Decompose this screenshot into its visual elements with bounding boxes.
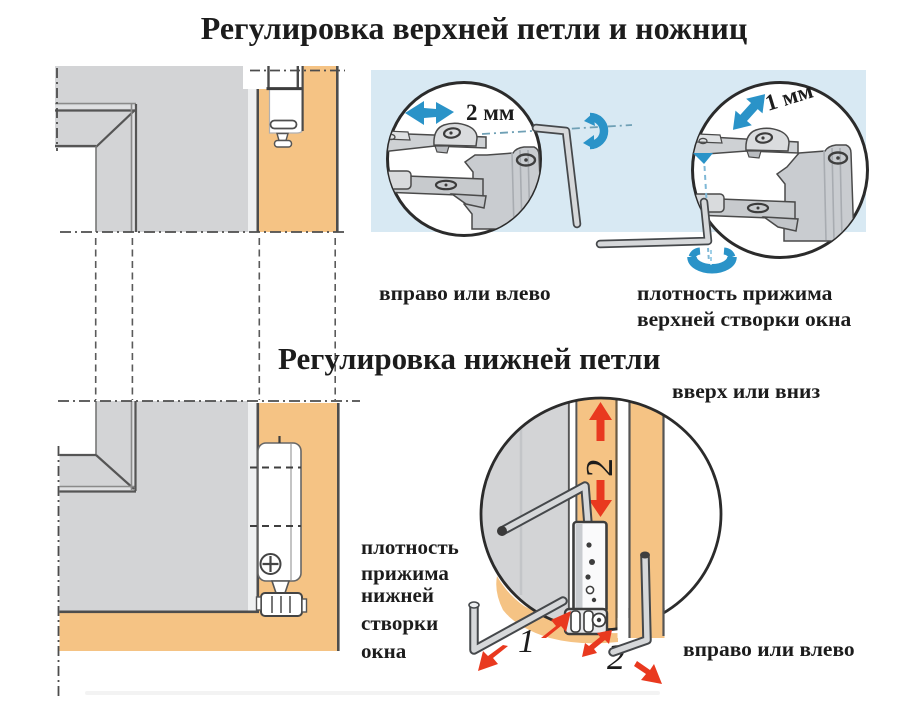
svg-text:вверх или вниз: вверх или вниз <box>672 379 820 403</box>
svg-text:окна: окна <box>361 639 407 663</box>
svg-text:верхней створки окна: верхней створки окна <box>637 307 852 331</box>
svg-text:вправо или влево: вправо или влево <box>683 637 855 661</box>
svg-text:плотность прижима: плотность прижима <box>637 281 833 305</box>
svg-text:вправо или влево: вправо или влево <box>379 281 551 305</box>
svg-text:Регулировка нижней петли: Регулировка нижней петли <box>278 341 661 376</box>
svg-text:плотность: плотность <box>361 535 459 559</box>
svg-text:2: 2 <box>607 637 625 677</box>
svg-text:1: 1 <box>518 623 535 660</box>
svg-text:створки: створки <box>361 611 438 635</box>
svg-text:прижима: прижима <box>361 561 449 585</box>
svg-text:нижней: нижней <box>361 583 434 607</box>
svg-text:2 мм: 2 мм <box>466 100 515 125</box>
svg-text:Регулировка верхней петли и но: Регулировка верхней петли и ножниц <box>201 10 748 46</box>
svg-text:2: 2 <box>579 458 621 477</box>
